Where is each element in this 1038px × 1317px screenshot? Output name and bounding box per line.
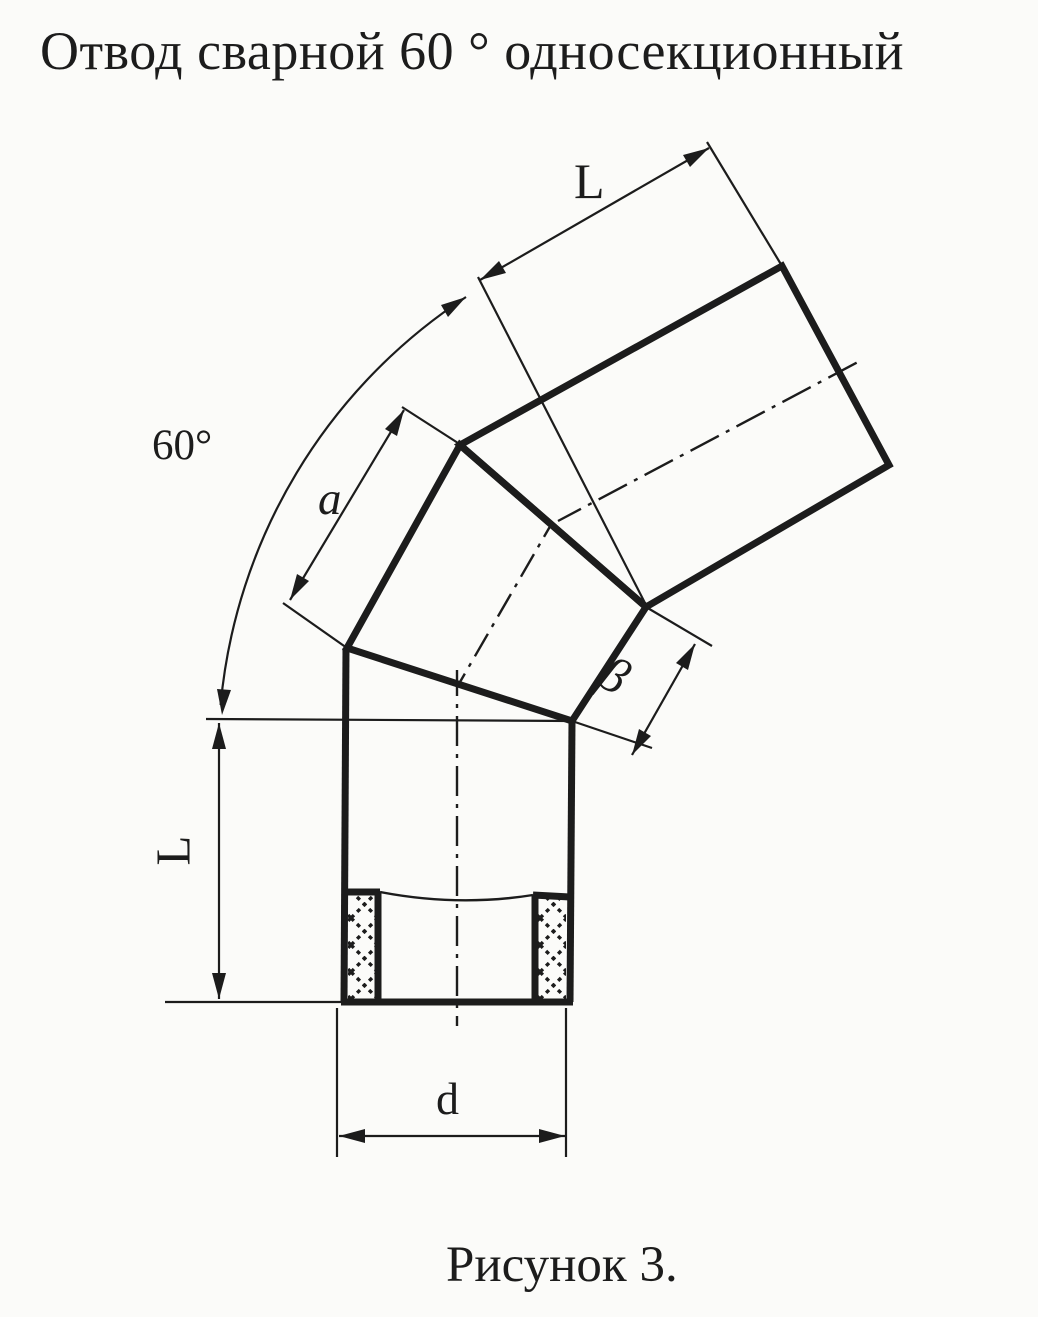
upper-length-label: L <box>574 156 605 206</box>
figure-caption: Рисунок 3. <box>446 1240 678 1291</box>
section-side-label: a <box>318 476 342 523</box>
hatch-left <box>348 894 377 1000</box>
hatch-right <box>538 897 566 1000</box>
diameter-label: d <box>436 1076 459 1122</box>
dimension-lines <box>219 148 709 1136</box>
elbow-drawing <box>0 0 1038 1317</box>
bend-angle-label: 60° <box>152 424 212 467</box>
technical-drawing-page: Отвод сварной 60 ° односекционный <box>0 0 1038 1317</box>
lower-length-label: L <box>148 836 197 866</box>
centerlines <box>457 362 858 1026</box>
upper-pipe-section <box>460 266 889 607</box>
dimension-arrowheads <box>212 148 709 1143</box>
